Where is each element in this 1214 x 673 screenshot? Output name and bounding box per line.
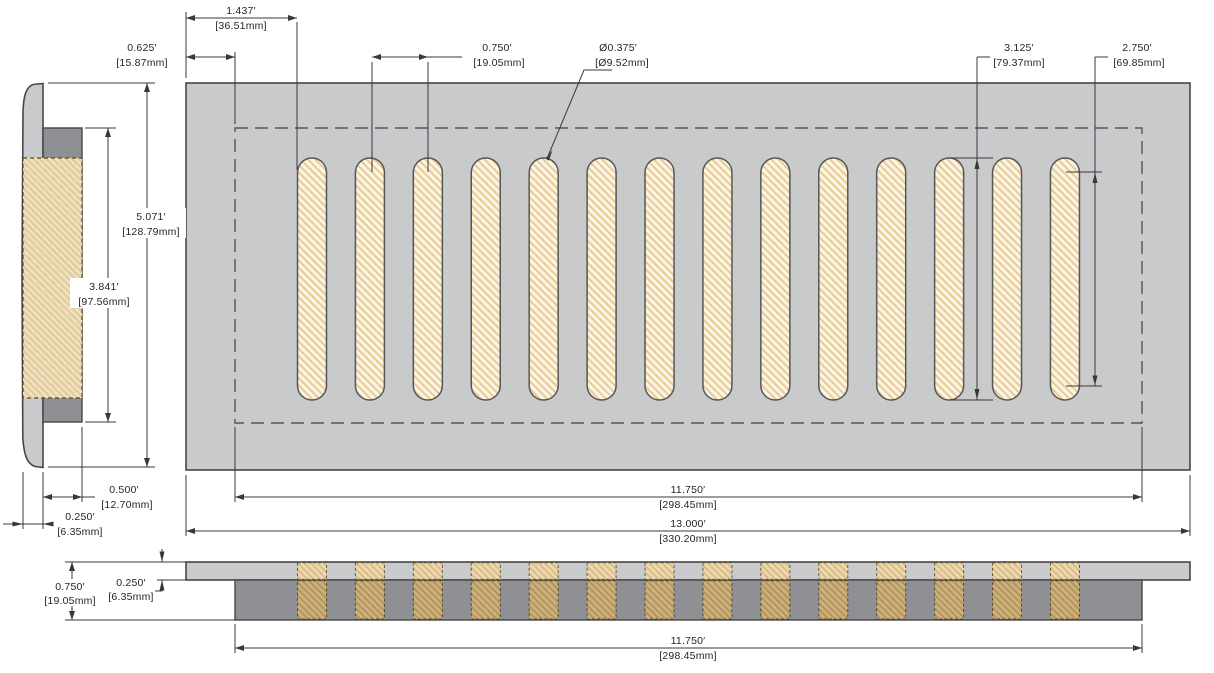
dim-slot-diameter-inch: Ø0.375′ <box>599 42 637 54</box>
side-view <box>22 84 82 468</box>
dim-slot-height-mm: [79.37mm] <box>993 57 1044 69</box>
slot-band-duct <box>413 581 442 619</box>
dim-profile-duct-width: 11.750′ [298.45mm] <box>235 624 1142 662</box>
dim-slot-pitch-mm: [19.05mm] <box>473 57 524 69</box>
dim-profile-total-height-mm: [19.05mm] <box>44 595 95 607</box>
vent-slot <box>761 158 790 400</box>
slot-band-flange <box>645 563 674 580</box>
dim-duct-opening-height-mm: [97.56mm] <box>78 296 129 308</box>
slot-band-flange <box>355 563 384 580</box>
vent-slot <box>413 158 442 400</box>
technical-drawing: 1.437′ [36.51mm] 0.625′ [15.87mm] 0.750′… <box>0 0 1214 673</box>
slot-band-flange <box>587 563 616 580</box>
slot-band-flange <box>993 563 1022 580</box>
slot-band-flange <box>761 563 790 580</box>
dim-duct-depth-mm: [12.70mm] <box>101 499 152 511</box>
vent-slot <box>298 158 327 400</box>
slot-band-duct <box>761 581 790 619</box>
vent-slot <box>877 158 906 400</box>
dim-profile-total-height-inch: 0.750′ <box>55 581 84 593</box>
dim-profile-flange-inch: 0.250′ <box>116 577 145 589</box>
front-view <box>186 83 1190 470</box>
slot-band-flange <box>819 563 848 580</box>
vent-slot <box>587 158 616 400</box>
vent-slot <box>645 158 674 400</box>
vent-slot <box>529 158 558 400</box>
dim-slot-diameter-mm: [Ø9.52mm] <box>595 57 649 69</box>
dim-border-margin-mm: [15.87mm] <box>116 57 167 69</box>
bottom-view <box>186 562 1190 620</box>
dim-overall-width-inch: 13.000′ <box>670 518 705 530</box>
dim-faceplate-thickness-mm: [6.35mm] <box>57 526 102 538</box>
drawing-canvas: 1.437′ [36.51mm] 0.625′ [15.87mm] 0.750′… <box>0 0 1214 673</box>
slot-band-flange <box>935 563 964 580</box>
slot-band-flange <box>1050 563 1079 580</box>
slot-band-flange <box>877 563 906 580</box>
slot-band-duct <box>355 581 384 619</box>
slot-band-flange <box>529 563 558 580</box>
dim-duct-depth: 0.500′ [12.70mm] <box>43 427 153 529</box>
slot-band-flange <box>471 563 500 580</box>
slot-band-flange <box>298 563 327 580</box>
dim-overall-width-mm: [330.20mm] <box>659 533 716 545</box>
slot-band-duct <box>877 581 906 619</box>
dim-profile-flange-mm: [6.35mm] <box>108 591 153 603</box>
slot-band-duct <box>645 581 674 619</box>
dim-faceplate-thickness-inch: 0.250′ <box>65 511 94 523</box>
dim-slot-pitch-inch: 0.750′ <box>482 42 511 54</box>
dim-duct-depth-inch: 0.500′ <box>109 484 138 496</box>
slot-band-duct <box>529 581 558 619</box>
dim-slot-offset-mm: [36.51mm] <box>215 20 266 32</box>
dim-profile-duct-width-mm: [298.45mm] <box>659 650 716 662</box>
dim-border-margin-inch: 0.625′ <box>127 42 156 54</box>
faceplate-front <box>186 83 1190 470</box>
dim-duct-width-inch: 11.750′ <box>671 484 706 496</box>
slot-band-duct <box>993 581 1022 619</box>
vent-slot <box>819 158 848 400</box>
vent-slot <box>935 158 964 400</box>
dim-slot-offset-inch: 1.437′ <box>226 5 255 17</box>
slot-band-flange <box>413 563 442 580</box>
slot-band-duct <box>587 581 616 619</box>
dim-slot-straight-inch: 2.750′ <box>1122 42 1151 54</box>
dim-profile-duct-width-inch: 11.750′ <box>671 635 706 647</box>
slot-band-flange <box>703 563 732 580</box>
vent-slot <box>355 158 384 400</box>
slot-band-duct <box>819 581 848 619</box>
slot-band-duct <box>298 581 327 619</box>
vent-slot <box>1050 158 1079 400</box>
vent-slot <box>471 158 500 400</box>
dim-overall-height-mm: [128.79mm] <box>122 226 179 238</box>
dim-faceplate-thickness: 0.250′ [6.35mm] <box>3 472 103 538</box>
vent-slot <box>993 158 1022 400</box>
slot-band-duct <box>1050 581 1079 619</box>
dim-slot-height-inch: 3.125′ <box>1004 42 1033 54</box>
slot-band-duct <box>471 581 500 619</box>
dim-slot-straight-mm: [69.85mm] <box>1113 57 1164 69</box>
dim-overall-height-inch: 5.071′ <box>136 211 165 223</box>
slot-band-duct <box>935 581 964 619</box>
dim-duct-width-mm: [298.45mm] <box>659 499 716 511</box>
faceplate-bottom-profile <box>186 562 1190 580</box>
slot-band-duct <box>703 581 732 619</box>
dim-profile-flange: 0.250′ [6.35mm] <box>108 549 186 603</box>
dim-duct-opening-height-inch: 3.841′ <box>89 281 118 293</box>
vent-slot <box>703 158 732 400</box>
